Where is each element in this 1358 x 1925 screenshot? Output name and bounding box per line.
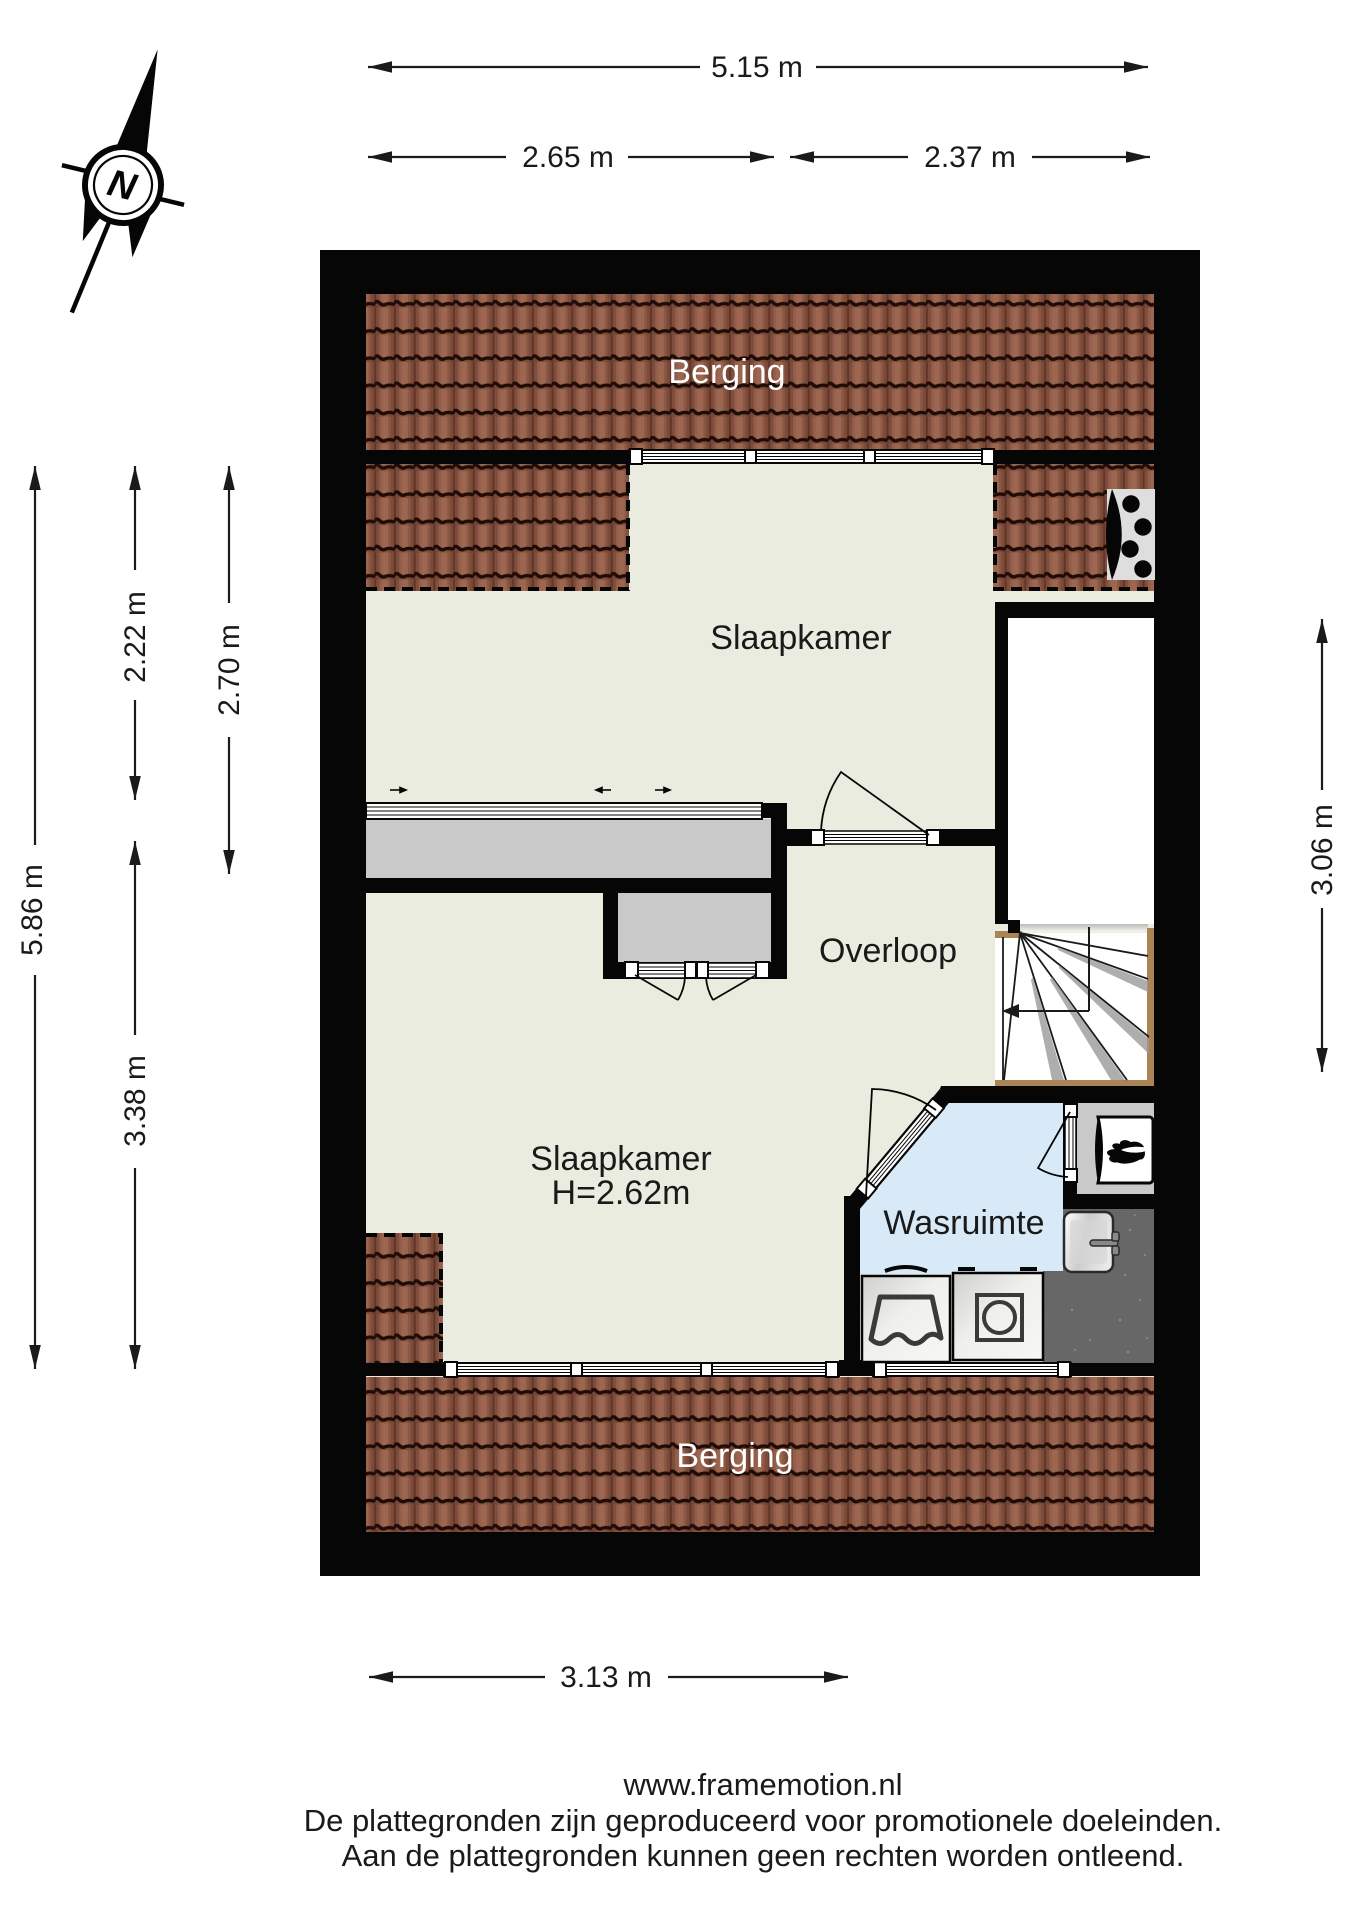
svg-text:Berging: Berging — [668, 353, 785, 391]
svg-text:2.70 m: 2.70 m — [213, 624, 246, 716]
svg-text:3.06 m: 3.06 m — [1306, 804, 1339, 896]
svg-text:Wasruimte: Wasruimte — [883, 1204, 1044, 1242]
svg-text:2.22 m: 2.22 m — [119, 591, 152, 683]
svg-text:www.framemotion.nl: www.framemotion.nl — [622, 1767, 902, 1802]
svg-text:Berging: Berging — [676, 1437, 793, 1475]
svg-text:Slaapkamer: Slaapkamer — [710, 619, 891, 657]
svg-text:Slaapkamer: Slaapkamer — [530, 1140, 711, 1178]
svg-text:De plattegronden zijn geproduc: De plattegronden zijn geproduceerd voor … — [304, 1803, 1223, 1838]
svg-text:3.13 m: 3.13 m — [560, 1661, 652, 1694]
svg-text:Overloop: Overloop — [819, 932, 957, 970]
svg-text:2.65 m: 2.65 m — [522, 141, 614, 174]
svg-text:Aan de plattegronden kunnen ge: Aan de plattegronden kunnen geen rechten… — [342, 1838, 1185, 1873]
svg-text:2.37 m: 2.37 m — [924, 141, 1016, 174]
svg-text:3.38 m: 3.38 m — [119, 1055, 152, 1147]
svg-text:5.86 m: 5.86 m — [16, 864, 49, 956]
svg-text:5.15 m: 5.15 m — [711, 51, 803, 84]
svg-text:H=2.62m: H=2.62m — [552, 1174, 691, 1212]
